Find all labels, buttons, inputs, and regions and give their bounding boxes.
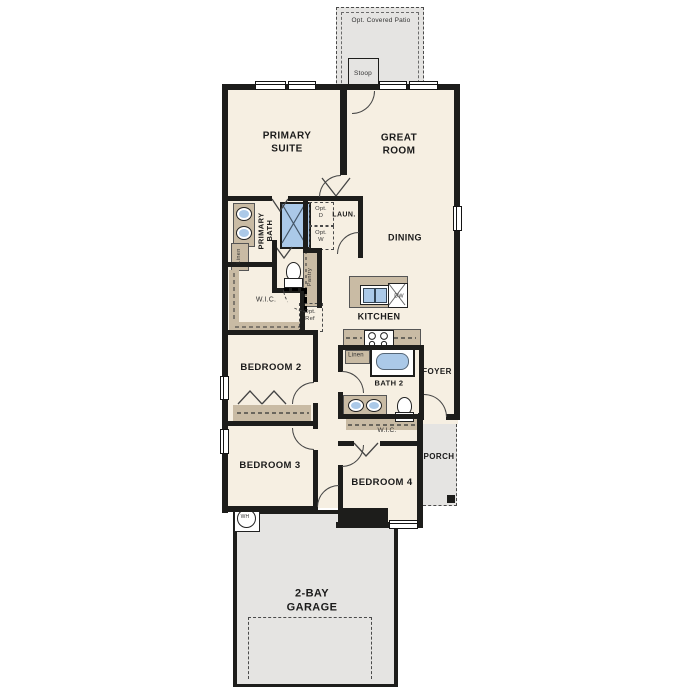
bedroom2-label: BEDROOM 2 [240, 362, 301, 374]
wall-laundry-left [303, 196, 308, 248]
window-great-1 [379, 81, 407, 90]
primary-bath-label: PRIMARY BATH [257, 212, 274, 249]
wall-bed4-right [417, 417, 423, 528]
wall-pantry-right [317, 248, 322, 308]
window-bedroom3 [220, 429, 229, 454]
foyer-label: FOYER [422, 367, 452, 377]
porch-label: PORCH [424, 452, 455, 462]
opt-dryer-label: Opt. D [315, 206, 327, 220]
wall-bed4-top-right [380, 441, 423, 446]
kitchen-label: KITCHEN [358, 311, 401, 322]
wic-bedroom4-label: W.I.C. [378, 427, 397, 435]
window-primary-2 [288, 81, 316, 90]
opt-washer-label: Opt. W [315, 230, 327, 244]
garage-label: 2-BAY GARAGE [287, 587, 338, 615]
wall-bed2-top [225, 330, 318, 335]
primary-suite-label: PRIMARY SUITE [263, 131, 312, 156]
wall-bed23-bottom [222, 506, 317, 512]
linen-primary-label: Linen [236, 248, 242, 263]
wall-primary-bottom-left [225, 196, 272, 201]
floor-plan: Opt. Covered Patio Stoop [0, 0, 687, 687]
wall-bed23-divider [222, 421, 318, 426]
wic-primary-label: W.I.C. [256, 297, 276, 306]
wall-laundry-bottom [303, 248, 317, 253]
bath2-label: BATH 2 [375, 378, 404, 387]
wall-front-right [446, 414, 460, 420]
wall-kitchen-bath2 [340, 345, 424, 350]
window-great-2 [409, 81, 438, 90]
opt-ref-label: Opt. Ref [304, 309, 316, 323]
bedroom3-label: BEDROOM 3 [239, 460, 300, 472]
dining-label: DINING [388, 232, 422, 243]
window-primary-1 [255, 81, 286, 90]
window-dining [453, 206, 462, 231]
great-room-label: GREAT ROOM [381, 133, 417, 158]
dishwasher-label: DW [394, 294, 404, 301]
wall-bath2-bottom [338, 414, 423, 419]
pantry-label: Pantry [307, 268, 313, 286]
wall-right [454, 84, 460, 420]
wall-primary-great-divider [340, 89, 347, 175]
laundry-label: LAUN. [332, 212, 355, 221]
window-bedroom2 [220, 376, 229, 400]
water-heater-label: WH [241, 514, 250, 520]
bedroom4-label: BEDROOM 4 [351, 477, 412, 489]
wall-bath2-left-upper [338, 345, 343, 372]
linen-bath2-label: Linen [348, 352, 364, 360]
window-bedroom4 [389, 520, 418, 529]
wall-bath-wic-divider [225, 262, 275, 267]
wall-bed2-right-upper [313, 330, 318, 382]
